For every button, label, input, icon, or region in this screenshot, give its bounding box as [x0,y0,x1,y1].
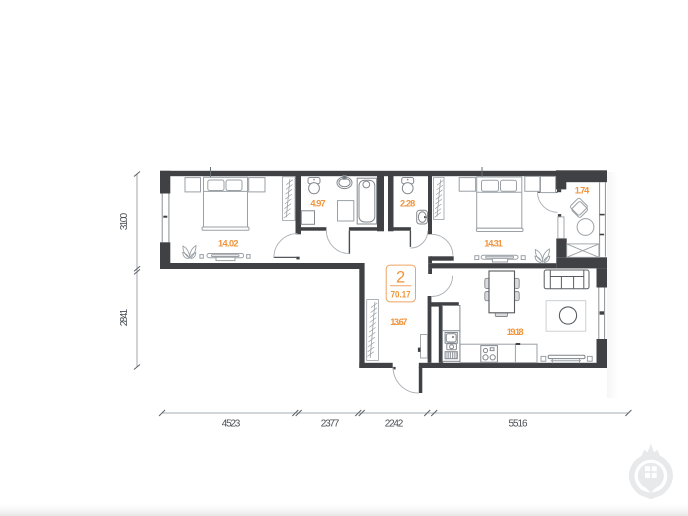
svg-text:4523: 4523 [222,419,241,430]
svg-text:2242: 2242 [385,419,404,430]
svg-text:2377: 2377 [321,419,340,430]
svg-text:70.17: 70.17 [391,289,411,299]
svg-text:2841: 2841 [119,308,130,326]
svg-text:19.18: 19.18 [507,327,524,337]
svg-text:1.74: 1.74 [575,186,590,196]
svg-text:2.28: 2.28 [400,199,415,209]
svg-text:4.97: 4.97 [310,199,325,209]
svg-text:14.31: 14.31 [484,238,502,248]
svg-text:5516: 5516 [509,419,528,430]
svg-text:13.67: 13.67 [390,317,407,327]
svg-text:3100: 3100 [119,212,130,230]
svg-text:2: 2 [396,268,405,286]
svg-text:14.02: 14.02 [218,239,239,249]
